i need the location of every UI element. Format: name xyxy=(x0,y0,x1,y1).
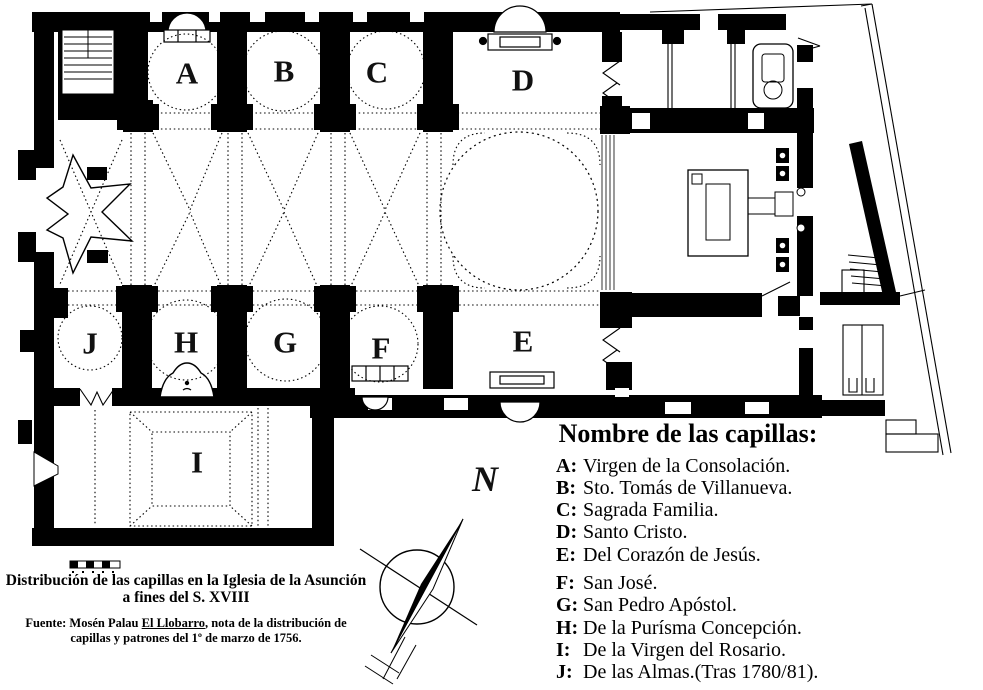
legend-item-key: A: xyxy=(556,455,583,477)
legend-item-key: F: xyxy=(556,572,583,594)
legend: Nombre de las capillas: A:Virgen de la C… xyxy=(556,420,983,684)
legend-item-key: E: xyxy=(556,544,583,566)
chapel-i-room xyxy=(34,408,268,528)
caption-title-line2: a fines del S. XVIII xyxy=(2,589,370,606)
legend-item: G:San Pedro Apóstol. xyxy=(556,594,983,616)
church-floorplan-page: A B C D E F G H I J N Nombre de las capi… xyxy=(0,0,983,690)
west-portal-star xyxy=(47,155,132,273)
legend-item: H:De la Purísma Concepción. xyxy=(556,617,983,639)
compass-rose xyxy=(360,519,477,684)
chapel-label-f: F xyxy=(372,333,391,364)
legend-item-name: De la Purísma Concepción. xyxy=(583,617,802,639)
legend-item-key: D: xyxy=(556,521,583,543)
caption-block: Distribución de las capillas en la Igles… xyxy=(2,572,370,645)
caption-source-underlined: El Llobarro xyxy=(142,616,205,630)
chapel-label-d: D xyxy=(512,65,534,96)
chapel-label-h: H xyxy=(174,327,198,358)
legend-item-key: G: xyxy=(556,594,583,616)
chapel-label-e: E xyxy=(513,326,534,357)
legend-item-key: B: xyxy=(556,477,583,499)
caption-source: Fuente: Mosén Palau El Llobarro, nota de… xyxy=(2,616,370,645)
chapel-label-g: G xyxy=(273,327,297,358)
legend-title: Nombre de las capillas: xyxy=(556,420,820,449)
chapel-label-b: B xyxy=(274,56,295,87)
legend-item: E:Del Corazón de Jesús. xyxy=(556,544,983,566)
legend-item-name: San José. xyxy=(583,572,657,594)
legend-item: F:San José. xyxy=(556,572,983,594)
chancel-furniture xyxy=(602,44,805,290)
legend-item-key: H: xyxy=(556,617,583,639)
caption-title-line1: Distribución de las capillas en la Igles… xyxy=(2,572,370,589)
legend-item-name: Del Corazón de Jesús. xyxy=(583,544,761,566)
compass-north-label: N xyxy=(472,458,498,500)
legend-item: J:De las Almas.(Tras 1780/81). xyxy=(556,661,983,683)
legend-item-name: Virgen de la Consolación. xyxy=(583,455,790,477)
caption-source-line2: capillas y patrones del 1º de marzo de 1… xyxy=(2,631,370,646)
legend-item-key: J: xyxy=(556,661,583,683)
legend-item-name: San Pedro Apóstol. xyxy=(583,594,737,616)
chapel-label-c: C xyxy=(366,57,388,88)
legend-item-name: Santo Cristo. xyxy=(583,521,687,543)
legend-item: I:De la Virgen del Rosario. xyxy=(556,639,983,661)
legend-item-key: I: xyxy=(556,639,583,661)
legend-item: A:Virgen de la Consolación. xyxy=(556,455,983,477)
caption-source-line1: Fuente: Mosén Palau El Llobarro, nota de… xyxy=(2,616,370,631)
legend-item-name: De las Almas.(Tras 1780/81). xyxy=(583,661,818,683)
legend-item-key: C: xyxy=(556,499,583,521)
legend-item-name: De la Virgen del Rosario. xyxy=(583,639,786,661)
legend-item: C:Sagrada Familia. xyxy=(556,499,983,521)
chapel-label-a: A xyxy=(176,58,198,89)
legend-list: A:Virgen de la Consolación. B:Sto. Tomás… xyxy=(556,455,983,684)
legend-item-name: Sto. Tomás de Villanueva. xyxy=(583,477,792,499)
legend-item-name: Sagrada Familia. xyxy=(583,499,719,521)
chapel-label-j: J xyxy=(82,328,98,359)
legend-item: D:Santo Cristo. xyxy=(556,521,983,543)
legend-item: B:Sto. Tomás de Villanueva. xyxy=(556,477,983,499)
chapel-label-i: I xyxy=(191,447,203,478)
